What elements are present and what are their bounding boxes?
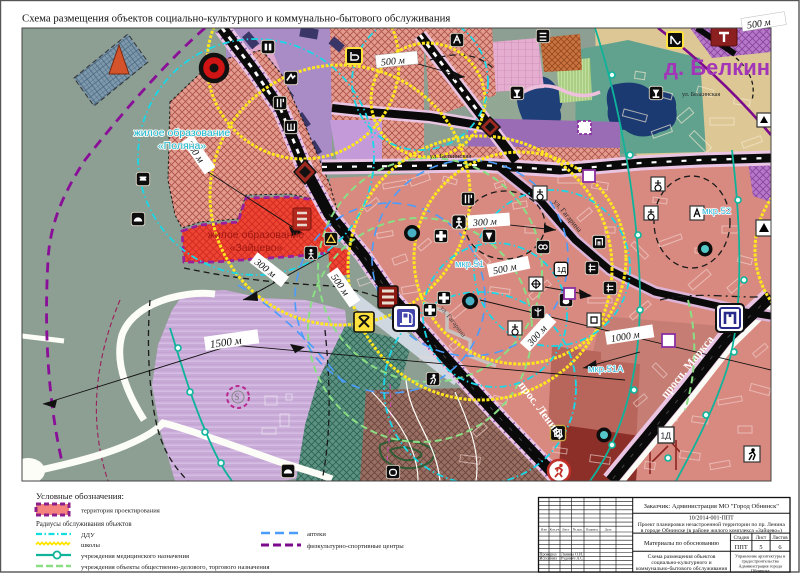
svg-text:школы: школы: [81, 542, 100, 549]
svg-text:Схема размещения объектов: Схема размещения объектов: [648, 553, 716, 560]
svg-text:учреждения медицинского назнач: учреждения медицинского назначения: [81, 553, 189, 560]
svg-text:Рудович А.С: Рудович А.С: [561, 556, 583, 561]
svg-text:Лист: Лист: [756, 536, 767, 541]
svg-text:Лист: Лист: [562, 527, 570, 531]
svg-text:ППТ: ППТ: [735, 544, 748, 551]
svg-text:Условные обозначения:: Условные обозначения:: [36, 491, 124, 501]
svg-text:учреждения объекты общественно: учреждения объекты общественно-делового,…: [81, 564, 270, 571]
svg-text:S: S: [235, 392, 240, 402]
svg-text:мкр.52: мкр.52: [702, 206, 731, 217]
svg-text:10/2014-001-ППТ: 10/2014-001-ППТ: [689, 516, 734, 522]
svg-text:«Зайцево»: «Зайцево»: [230, 242, 283, 254]
svg-text:территория проектирования: территория проектирования: [81, 508, 160, 515]
svg-text:д. Белкин: д. Белкин: [664, 55, 770, 80]
svg-text:6: 6: [778, 544, 781, 551]
svg-text:Обнинска: Обнинска: [751, 568, 769, 573]
svg-text:в городе Обнинске (в районе жи: в городе Обнинске (в районе жилого компл…: [641, 527, 782, 534]
svg-text:Материалы по обоснованию: Материалы по обоснованию: [644, 540, 719, 547]
svg-text:Радиусы обслуживания объектов: Радиусы обслуживания объектов: [36, 521, 132, 528]
svg-text:300 м: 300 м: [472, 216, 498, 229]
svg-text:Кол.уч: Кол.уч: [550, 527, 560, 531]
svg-text:ул. Белкинская: ул. Белкинская: [430, 153, 471, 160]
svg-text:Стадия: Стадия: [734, 536, 750, 541]
svg-text:5: 5: [759, 544, 762, 551]
svg-text:№ док.: № док.: [573, 527, 583, 531]
svg-text:мкр.51: мкр.51: [455, 259, 484, 270]
svg-text:Подпись: Подпись: [586, 527, 599, 531]
svg-text:мкр.51А: мкр.51А: [588, 364, 624, 375]
svg-text:Дата: Дата: [605, 527, 612, 531]
svg-text:Заказчик: Администрация МО "Го: Заказчик: Администрация МО "Город Обнинс…: [644, 503, 780, 510]
svg-text:ДДУ: ДДУ: [81, 532, 95, 539]
svg-text:1Д: 1Д: [557, 265, 566, 274]
svg-text:Проект планировки незастроенно: Проект планировки незастроенной территор…: [638, 521, 786, 528]
svg-text:Схема размещения объектов соци: Схема размещения объектов социально-куль…: [22, 13, 450, 25]
svg-text:«Поляна»: «Поляна»: [158, 140, 206, 152]
svg-text:Изм: Изм: [541, 527, 548, 531]
svg-text:ул. Белкинская: ул. Белкинская: [682, 92, 720, 98]
svg-text:жилое образование: жилое образование: [208, 229, 305, 241]
svg-text:Исполнил: Исполнил: [540, 556, 557, 561]
svg-text:аптеки: аптеки: [307, 531, 326, 538]
svg-text:1Д: 1Д: [661, 431, 672, 441]
svg-text:физкультурно-спортивные центры: физкультурно-спортивные центры: [307, 543, 404, 550]
svg-text:Листов: Листов: [772, 536, 788, 541]
svg-text:жилое образование: жилое образование: [134, 127, 231, 139]
svg-text:коммунально-бытового обслужива: коммунально-бытового обслуживания: [636, 565, 728, 572]
